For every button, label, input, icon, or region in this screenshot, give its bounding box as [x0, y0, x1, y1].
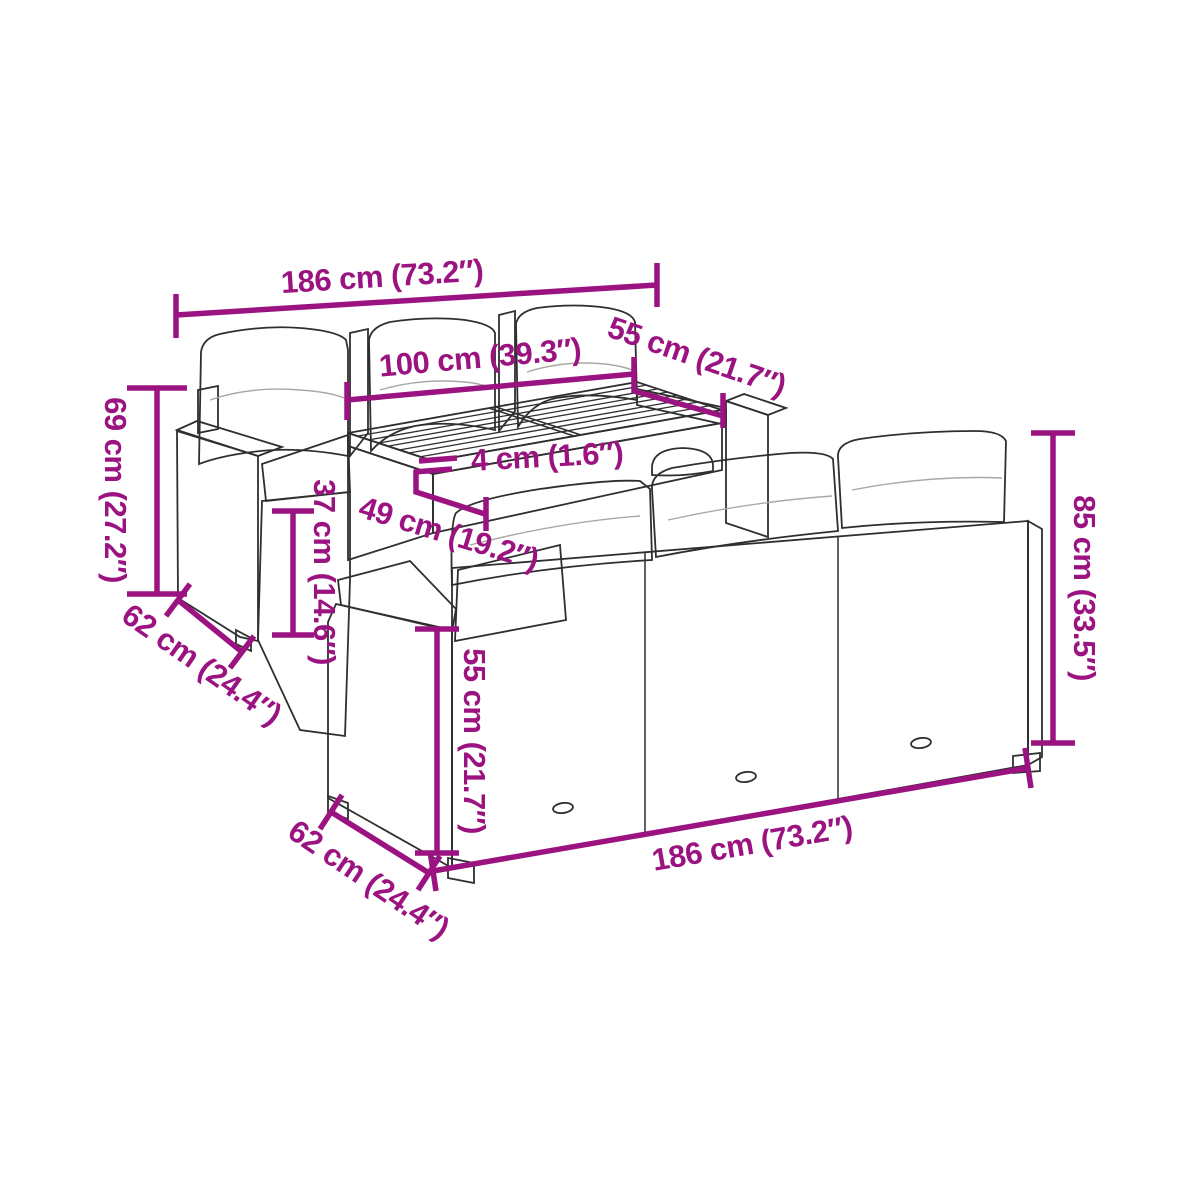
- drain-hole-1: [552, 802, 573, 815]
- sofa-bottom-armrest-front: [328, 604, 452, 868]
- sofa-top-armrest-right: [726, 401, 768, 537]
- diagram-canvas: 186 cm (73.2″) 100 cm (39.3″) 55 cm (21.…: [0, 0, 1200, 1200]
- label-top-sofa-width: 186 cm (73.2″): [280, 253, 484, 301]
- seat-back-cushion-2: [652, 453, 838, 557]
- label-armrest-height: 37 cm (14.6″): [307, 479, 342, 665]
- label-total-height: 85 cm (33.5″): [1067, 495, 1102, 681]
- drain-hole-3: [910, 737, 931, 750]
- sofa-bottom-armrest-top: [338, 561, 456, 631]
- sofa-bottom-side-right: [1028, 521, 1042, 765]
- label-bottom-sofa-width: 186 cm (73.2″): [649, 809, 855, 878]
- dimension-bottom-sofa-width: [430, 748, 1031, 891]
- seat-back-cushion-3-seam: [852, 478, 1002, 491]
- label-seat-height: 55 cm (21.7″): [457, 648, 492, 834]
- drain-hole-2: [735, 771, 756, 784]
- table-base-arch: [652, 448, 713, 476]
- label-back-height: 69 cm (27.2″): [98, 397, 133, 583]
- label-tabletop-thickness: 4 cm (1.6″): [470, 435, 624, 478]
- dimension-tabletop-thickness: [414, 458, 457, 472]
- dimension-diagram: 186 cm (73.2″) 100 cm (39.3″) 55 cm (21.…: [0, 0, 1200, 1200]
- back-cushion-1-seam: [210, 389, 344, 400]
- seat-back-cushion-2-seam: [668, 496, 832, 520]
- label-table-length: 100 cm (39.3″): [378, 331, 583, 384]
